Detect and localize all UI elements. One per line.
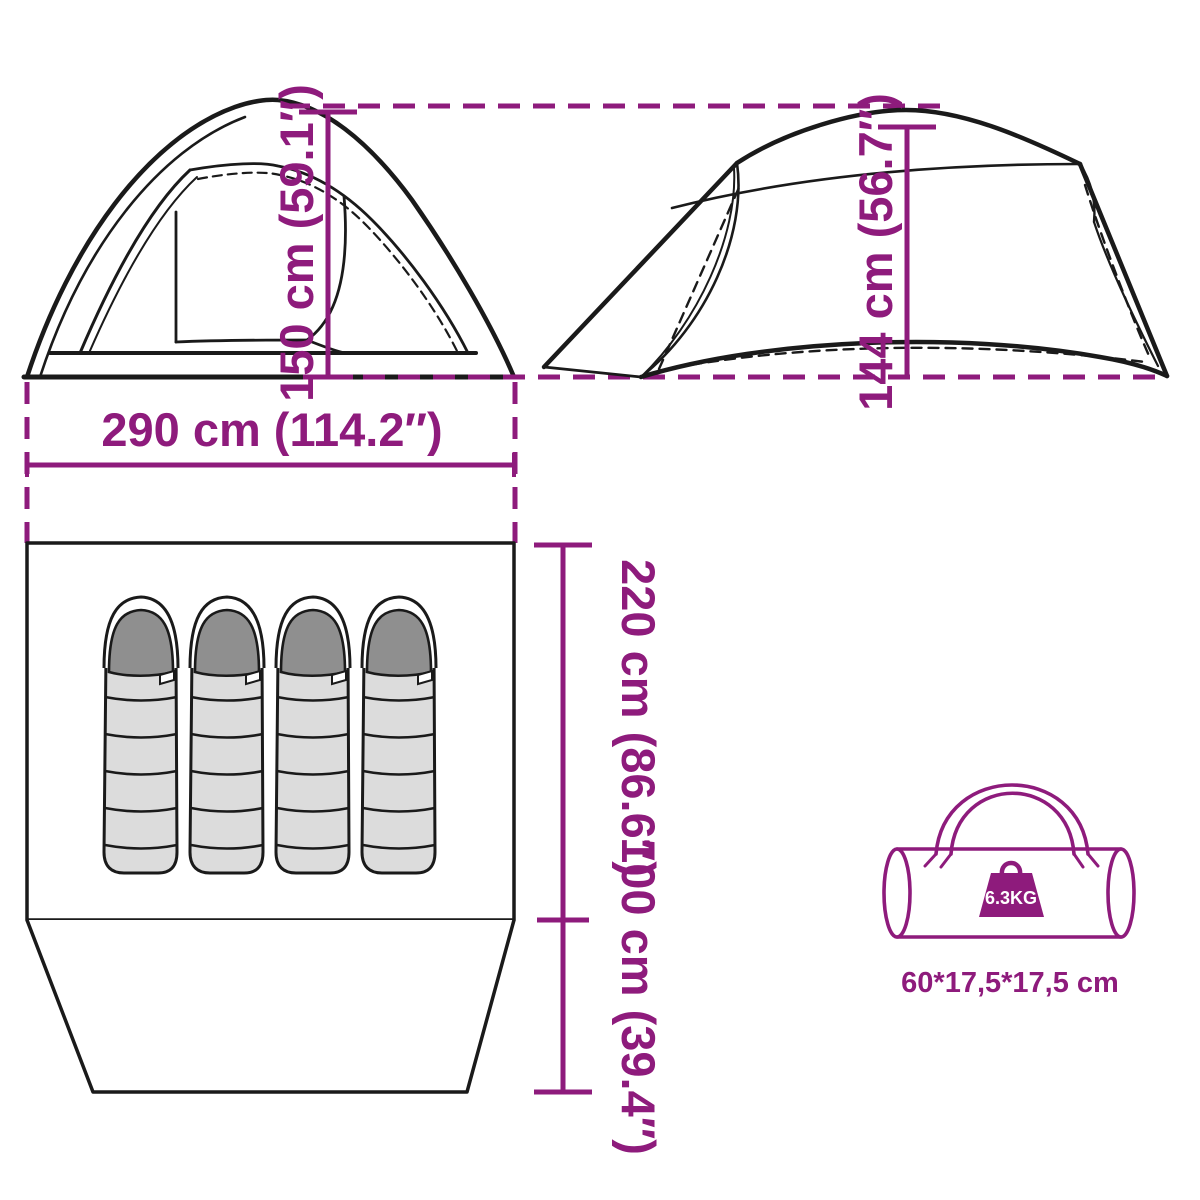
side-height-label: 144 cm (56.7″) (849, 93, 902, 411)
carry-bag-size-label: 60*17,5*17,5 cm (901, 967, 1119, 999)
carry-bag-handle-inner (951, 793, 1074, 854)
front-inner-slope-2 (89, 177, 197, 353)
floor-plan (27, 543, 514, 1092)
floor-porch-length-label: 100 cm (39.4″) (612, 837, 665, 1155)
carry-bag-right-cap (1108, 849, 1134, 937)
weight-icon: 6.3KG (979, 863, 1044, 917)
side-right-inner-line (1094, 222, 1158, 366)
sleeping-bag (362, 597, 436, 873)
tent-dimension-diagram: 150 cm (59.1″) 290 cm (114.2″) 144 cm (5… (0, 0, 1200, 1200)
floor-plan-main-area (27, 543, 514, 920)
side-porch-hypotenuse (544, 163, 737, 367)
floor-plan-porch-area (27, 920, 514, 1092)
reference-dashed-lines (27, 106, 1162, 543)
width-measurement (27, 453, 514, 477)
sleeping-bag (190, 597, 264, 873)
floor-inner-length-label: 220 cm (86.6″) (612, 559, 665, 877)
carry-bag-left-cap (884, 849, 910, 937)
front-height-label: 150 cm (59.1″) (270, 84, 323, 402)
diagram-canvas: 150 cm (59.1″) 290 cm (114.2″) 144 cm (5… (0, 0, 1200, 1200)
sleeping-bag (276, 597, 350, 873)
carry-bag-handle-outer (936, 785, 1088, 854)
weight-label: 6.3KG (985, 888, 1037, 908)
width-label: 290 cm (114.2″) (101, 403, 442, 456)
side-inner-dashed-left (659, 183, 741, 369)
floor-length-measurement (534, 545, 592, 1092)
sleeping-bag (104, 597, 178, 873)
